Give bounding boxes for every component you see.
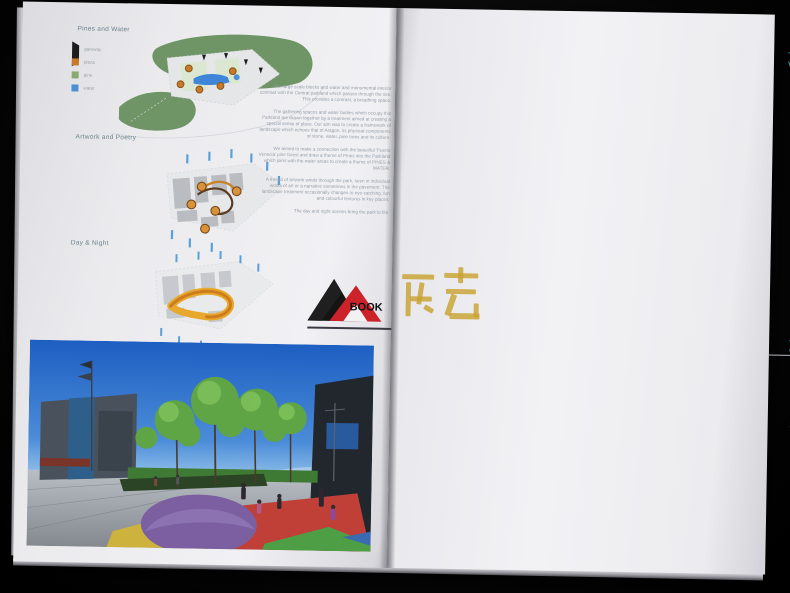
essay-text-column: The large scale blocks and water and mon… [257, 84, 391, 223]
essay-paragraph: The large scale blocks and water and mon… [259, 84, 391, 104]
legend-row-water: water [71, 81, 100, 95]
gateway-flag-icon [72, 45, 79, 52]
plaza-swatch-icon [72, 58, 79, 65]
essay-paragraph: A thread of artwork winds through the pa… [258, 176, 390, 202]
book-photo-scene: Pines and Water gateway plaza pine water [0, 0, 790, 593]
essay-paragraph: The day and night scenes bring the park … [257, 207, 389, 215]
watermark-underline [307, 326, 391, 329]
pine-swatch-icon [72, 71, 79, 78]
water-swatch-icon [71, 84, 78, 91]
watermark-cjk-label: 筑艺 [306, 264, 307, 265]
mountain-logo-icon [305, 270, 402, 330]
section-title-day-night: Day & Night [71, 239, 109, 247]
park-playground-photo [26, 340, 374, 552]
legend-row-gateway: gateway [72, 42, 101, 56]
section-title-artwork-poetry: Artwork and Poetry [76, 133, 137, 141]
pines-water-legend: gateway plaza pine water [71, 42, 101, 95]
watermark-book-label: BOOK [350, 301, 383, 314]
open-book-spread: Pines and Water gateway plaza pine water [13, 1, 775, 574]
essay-paragraph: The gathering spaces and water bodies wh… [259, 109, 392, 141]
legend-row-pine: pine [72, 68, 101, 82]
day-night-plan-diagram [122, 249, 304, 352]
publisher-watermark: BOOK 筑艺 [305, 264, 486, 339]
margin-rule [769, 355, 790, 356]
essay-paragraph: We aimed to make a connection with the b… [258, 145, 390, 171]
